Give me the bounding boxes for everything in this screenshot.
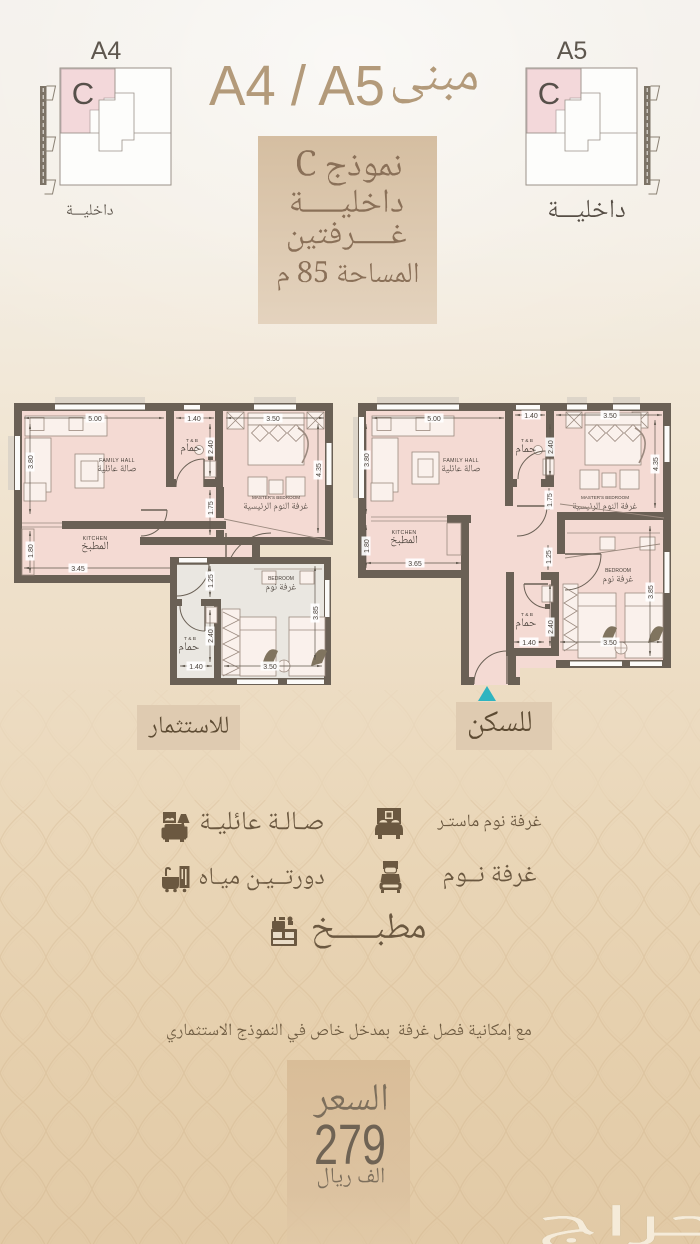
svg-text:2.40: 2.40 [548, 440, 555, 454]
svg-text:4.35: 4.35 [653, 457, 660, 471]
svg-text:BEDROOM: BEDROOM [605, 568, 631, 574]
svg-text:3.50: 3.50 [603, 640, 617, 647]
svg-text:BEDROOM: BEDROOM [268, 576, 294, 582]
svg-text:T & B: T & B [521, 438, 533, 444]
svg-text:A5: A5 [557, 37, 588, 65]
svg-text:3.50: 3.50 [603, 413, 617, 420]
svg-text:1.40: 1.40 [522, 640, 536, 647]
svg-text:1.80: 1.80 [364, 539, 371, 553]
svg-text:2.40: 2.40 [208, 440, 215, 454]
svg-text:3.50: 3.50 [263, 664, 277, 671]
svg-text:1.80: 1.80 [28, 544, 35, 558]
svg-text:1.25: 1.25 [546, 550, 553, 564]
svg-text:FAMILY HALL: FAMILY HALL [443, 458, 479, 464]
svg-text:MASTER'S BEDROOM: MASTER'S BEDROOM [252, 495, 300, 500]
svg-text:FAMILY HALL: FAMILY HALL [99, 458, 135, 464]
svg-text:3.45: 3.45 [71, 566, 85, 573]
svg-text:5.00: 5.00 [88, 416, 102, 423]
svg-text:KITCHEN: KITCHEN [83, 536, 108, 542]
svg-text:3.50: 3.50 [266, 416, 280, 423]
svg-text:3.85: 3.85 [313, 606, 320, 620]
svg-text:T & B: T & B [186, 438, 198, 444]
svg-text:1.25: 1.25 [208, 574, 215, 588]
svg-text:3.80: 3.80 [28, 455, 35, 469]
svg-text:3.65: 3.65 [408, 561, 422, 568]
svg-text:3.85: 3.85 [648, 585, 655, 599]
svg-text:2.40: 2.40 [208, 629, 215, 643]
svg-text:279: 279 [314, 1113, 386, 1177]
svg-text:1.40: 1.40 [189, 664, 203, 671]
svg-text:KITCHEN: KITCHEN [392, 530, 417, 536]
svg-text:A4 / A5: A4 / A5 [209, 54, 385, 118]
svg-text:4.35: 4.35 [316, 463, 323, 477]
svg-text:3.80: 3.80 [364, 453, 371, 467]
svg-text:2.40: 2.40 [548, 620, 555, 634]
svg-text:MASTER'S BEDROOM: MASTER'S BEDROOM [581, 495, 629, 500]
svg-text:1.40: 1.40 [524, 413, 538, 420]
svg-text:T & B: T & B [184, 636, 196, 642]
svg-text:1.40: 1.40 [187, 416, 201, 423]
svg-text:T & B: T & B [521, 612, 533, 618]
svg-text:1.75: 1.75 [208, 501, 215, 515]
svg-text:A4: A4 [91, 37, 122, 65]
svg-text:1.75: 1.75 [547, 493, 554, 507]
svg-text:C: C [72, 76, 94, 111]
svg-text:5.00: 5.00 [427, 416, 441, 423]
svg-text:C: C [538, 76, 560, 111]
